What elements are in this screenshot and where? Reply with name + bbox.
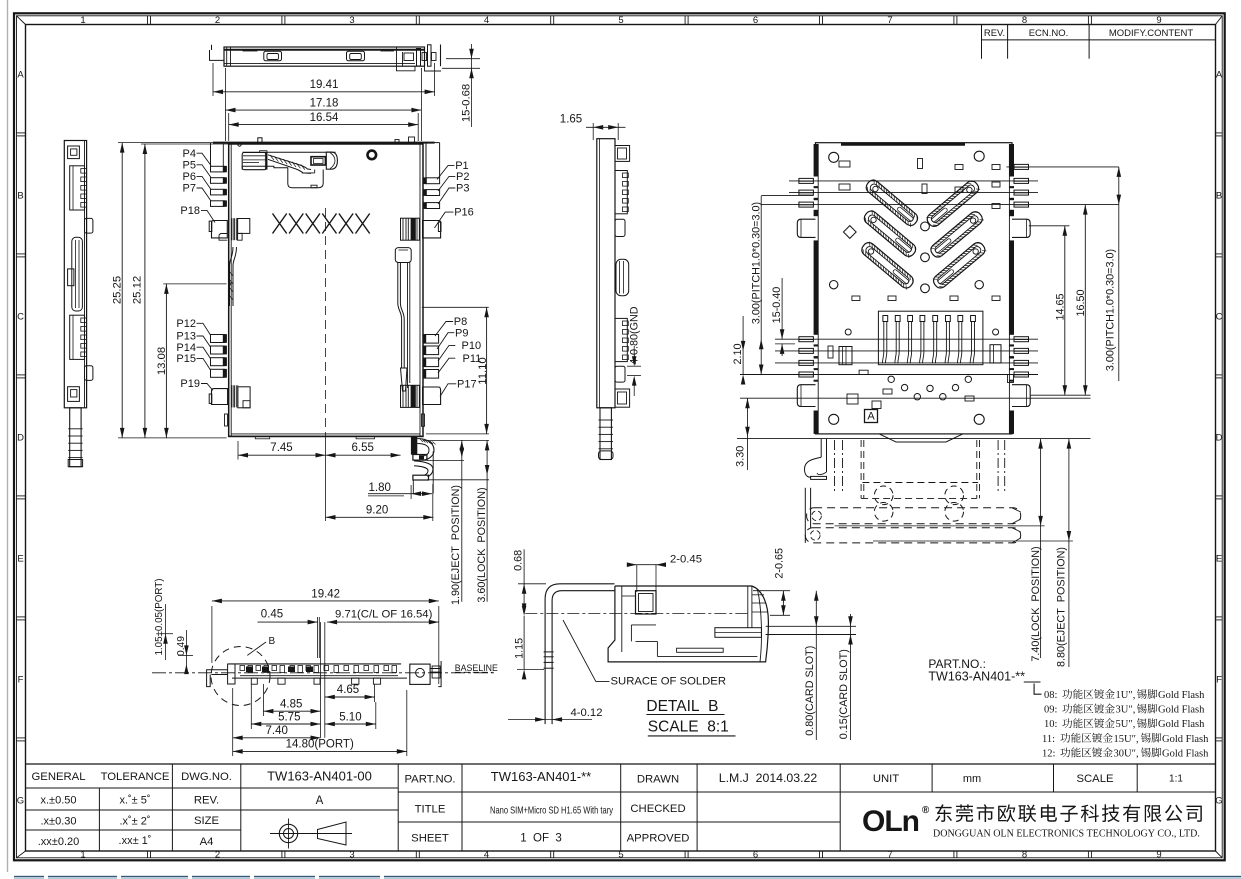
svg-text:G: G bbox=[1215, 795, 1222, 806]
svg-text:5.75: 5.75 bbox=[278, 711, 300, 723]
svg-text:14.65: 14.65 bbox=[1054, 293, 1066, 320]
svg-text:19.41: 19.41 bbox=[310, 79, 339, 91]
svg-text:C: C bbox=[1216, 311, 1223, 322]
svg-text:11.10: 11.10 bbox=[477, 357, 489, 384]
svg-text:SIZE: SIZE bbox=[194, 815, 220, 827]
svg-text:SCALE 8:1: SCALE 8:1 bbox=[648, 719, 729, 736]
svg-text:Gold Flash: Gold Flash bbox=[1158, 690, 1205, 701]
svg-text:Gold Flash: Gold Flash bbox=[1162, 748, 1209, 759]
svg-text:P19: P19 bbox=[180, 378, 200, 390]
svg-text:P16: P16 bbox=[454, 207, 474, 219]
svg-text:12:: 12: bbox=[1042, 748, 1056, 759]
svg-text:3.60(LOCK POSITION): 3.60(LOCK POSITION) bbox=[476, 487, 488, 602]
svg-text:DONGGUAN OLN ELECTRONICS TECHN: DONGGUAN OLN ELECTRONICS TECHNOLOGY CO.,… bbox=[933, 829, 1200, 840]
svg-text:2-0.65: 2-0.65 bbox=[774, 548, 786, 579]
svg-text:3.30: 3.30 bbox=[735, 446, 747, 467]
svg-text:P3: P3 bbox=[456, 183, 469, 195]
svg-text:1.15: 1.15 bbox=[513, 638, 525, 659]
svg-text:Gold Flash: Gold Flash bbox=[1158, 705, 1205, 716]
svg-text:9: 9 bbox=[1156, 15, 1161, 26]
svg-text:8: 8 bbox=[1022, 15, 1027, 26]
svg-text:P17: P17 bbox=[457, 378, 477, 390]
svg-text:16.50: 16.50 bbox=[1075, 289, 1087, 316]
svg-text:F: F bbox=[18, 674, 24, 685]
svg-text:A: A bbox=[17, 69, 24, 80]
svg-text:6.55: 6.55 bbox=[352, 442, 374, 454]
svg-text:REV.: REV. bbox=[984, 28, 1005, 39]
svg-text:E: E bbox=[17, 553, 23, 564]
svg-text:0.45: 0.45 bbox=[261, 609, 283, 621]
svg-text:17.18: 17.18 bbox=[310, 97, 339, 109]
svg-text:P13: P13 bbox=[176, 331, 196, 343]
svg-text:3U″,: 3U″, bbox=[1116, 705, 1136, 716]
svg-text:30U″,: 30U″, bbox=[1114, 748, 1139, 759]
svg-text:TW163-AN401-**: TW163-AN401-** bbox=[928, 670, 1025, 684]
svg-text:.xx± 1˚: .xx± 1˚ bbox=[119, 835, 152, 847]
svg-text:mm: mm bbox=[963, 773, 981, 785]
svg-text:1.80: 1.80 bbox=[369, 482, 391, 494]
svg-text:1: 1 bbox=[80, 849, 85, 860]
svg-text:P15: P15 bbox=[176, 353, 196, 365]
svg-text:P4: P4 bbox=[183, 148, 196, 160]
svg-text:P12: P12 bbox=[176, 318, 196, 330]
svg-text:15-0.40: 15-0.40 bbox=[771, 287, 783, 324]
svg-text:®: ® bbox=[922, 805, 930, 816]
svg-text:TW163-AN401-**: TW163-AN401-** bbox=[491, 769, 591, 784]
svg-text:OLn: OLn bbox=[862, 805, 919, 838]
svg-text:Gold Flash: Gold Flash bbox=[1158, 719, 1205, 730]
svg-text:4.85: 4.85 bbox=[280, 699, 302, 711]
svg-text:1:1: 1:1 bbox=[1169, 774, 1183, 785]
svg-text:3: 3 bbox=[349, 849, 354, 860]
svg-text:2-0.45: 2-0.45 bbox=[670, 554, 702, 566]
svg-text:3: 3 bbox=[349, 15, 354, 26]
svg-text:ECN.NO.: ECN.NO. bbox=[1029, 28, 1069, 39]
svg-text:REV.: REV. bbox=[194, 795, 219, 807]
svg-text:4-0.12: 4-0.12 bbox=[570, 707, 602, 719]
svg-text:09:: 09: bbox=[1044, 705, 1058, 716]
svg-text:7.45: 7.45 bbox=[270, 442, 292, 454]
svg-text:10:: 10: bbox=[1044, 719, 1058, 730]
svg-text:A: A bbox=[867, 411, 875, 423]
svg-text:13.08: 13.08 bbox=[156, 347, 168, 375]
svg-text:0.15(CARD SLOT): 0.15(CARD SLOT) bbox=[838, 649, 850, 739]
svg-text:TW163-AN401-00: TW163-AN401-00 bbox=[267, 769, 372, 784]
svg-text:E: E bbox=[1216, 553, 1222, 564]
svg-text:.xx±0.20: .xx±0.20 bbox=[38, 836, 80, 848]
svg-text:Gold Flash: Gold Flash bbox=[1162, 734, 1209, 745]
svg-text:25.25: 25.25 bbox=[111, 276, 123, 304]
svg-text:P8: P8 bbox=[454, 316, 467, 328]
svg-text:x.˚± 5˚: x.˚± 5˚ bbox=[119, 795, 150, 807]
svg-text:4: 4 bbox=[484, 15, 489, 26]
svg-text:1.05±0.05(PORT): 1.05±0.05(PORT) bbox=[154, 578, 165, 655]
svg-text:DETAIL B: DETAIL B bbox=[646, 698, 718, 715]
svg-text:9.20: 9.20 bbox=[366, 504, 388, 516]
svg-text:5: 5 bbox=[618, 15, 623, 26]
svg-text:3.00(PITCH1.0*0.30=3.0): 3.00(PITCH1.0*0.30=3.0) bbox=[1104, 249, 1116, 371]
svg-text:2: 2 bbox=[215, 849, 220, 860]
svg-text:6: 6 bbox=[753, 15, 758, 26]
svg-text:UNIT: UNIT bbox=[873, 773, 899, 785]
svg-text:5U″,: 5U″, bbox=[1116, 719, 1136, 730]
svg-text:B: B bbox=[17, 190, 23, 201]
svg-text:5.10: 5.10 bbox=[339, 711, 361, 723]
svg-text:L.M.J 2014.03.22: L.M.J 2014.03.22 bbox=[719, 771, 818, 785]
svg-text:8.80(EJECT POSITION): 8.80(EJECT POSITION) bbox=[1056, 547, 1068, 667]
svg-text:P2: P2 bbox=[456, 171, 469, 183]
svg-text:14.80(PORT): 14.80(PORT) bbox=[286, 739, 354, 751]
svg-text:08:: 08: bbox=[1044, 690, 1058, 701]
svg-text:TITLE: TITLE bbox=[415, 804, 446, 816]
svg-text:GENERAL: GENERAL bbox=[32, 771, 86, 783]
svg-text:P7: P7 bbox=[183, 183, 196, 195]
svg-text:.x˚± 2˚: .x˚± 2˚ bbox=[119, 816, 150, 828]
svg-text:2.10: 2.10 bbox=[732, 343, 744, 364]
svg-text:19.42: 19.42 bbox=[311, 588, 340, 600]
svg-text:CHECKED: CHECKED bbox=[630, 803, 685, 815]
svg-text:1U″,: 1U″, bbox=[1116, 690, 1136, 701]
svg-text:3.00(PITCH1.0*0.30=3.0): 3.00(PITCH1.0*0.30=3.0) bbox=[750, 202, 762, 324]
svg-text:APPROVED: APPROVED bbox=[627, 833, 690, 845]
svg-text:P6: P6 bbox=[183, 171, 196, 183]
svg-text:7.40(LOCK POSITION): 7.40(LOCK POSITION) bbox=[1030, 546, 1042, 661]
svg-text:A: A bbox=[316, 795, 324, 807]
svg-text:SHEET: SHEET bbox=[411, 833, 449, 845]
svg-text:SCALE: SCALE bbox=[1076, 773, 1114, 785]
svg-text:A4: A4 bbox=[200, 836, 214, 848]
svg-text:PART.NO.: PART.NO. bbox=[404, 774, 455, 786]
svg-text:9.71(C/L OF 16.54): 9.71(C/L OF 16.54) bbox=[335, 609, 433, 621]
svg-text:5: 5 bbox=[618, 849, 623, 860]
svg-text:7: 7 bbox=[887, 849, 892, 860]
svg-text:2: 2 bbox=[215, 15, 220, 26]
svg-text:BASELINE: BASELINE bbox=[455, 663, 498, 673]
svg-text:15-0.68: 15-0.68 bbox=[461, 84, 473, 122]
svg-text:C: C bbox=[17, 311, 24, 322]
svg-text:25.12: 25.12 bbox=[132, 276, 144, 304]
svg-text:1: 1 bbox=[80, 15, 85, 26]
svg-text:P14: P14 bbox=[176, 342, 196, 354]
svg-text:4.65: 4.65 bbox=[337, 684, 359, 696]
svg-text:6: 6 bbox=[753, 849, 758, 860]
svg-text:4: 4 bbox=[484, 849, 489, 860]
svg-text:P9: P9 bbox=[455, 327, 468, 339]
svg-text:B: B bbox=[1216, 190, 1222, 201]
svg-text:1.65: 1.65 bbox=[560, 114, 582, 126]
svg-text:TOLERANCE: TOLERANCE bbox=[101, 771, 170, 783]
svg-text:15U″,: 15U″, bbox=[1114, 734, 1139, 745]
svg-text:0.68: 0.68 bbox=[512, 550, 524, 571]
svg-text:1 OF 3: 1 OF 3 bbox=[520, 833, 562, 845]
svg-text:SURACE OF SOLDER: SURACE OF SOLDER bbox=[611, 675, 727, 687]
svg-text:P10: P10 bbox=[462, 340, 482, 352]
svg-text:B: B bbox=[269, 636, 276, 647]
svg-text:D: D bbox=[1216, 432, 1223, 443]
svg-text:Nano SIM+Micro SD H1.65 With t: Nano SIM+Micro SD H1.65 With tary bbox=[490, 806, 614, 817]
svg-text:A: A bbox=[1216, 69, 1223, 80]
svg-text:P18: P18 bbox=[180, 205, 200, 217]
svg-text:7: 7 bbox=[887, 15, 892, 26]
svg-text:16.54: 16.54 bbox=[310, 112, 339, 124]
svg-text:MODIFY.CONTENT: MODIFY.CONTENT bbox=[1109, 28, 1193, 39]
svg-text:11:: 11: bbox=[1042, 734, 1055, 745]
svg-text:DWG.NO.: DWG.NO. bbox=[181, 771, 232, 783]
svg-text:DRAWN: DRAWN bbox=[637, 774, 679, 786]
svg-text:F: F bbox=[1216, 674, 1222, 685]
svg-text:1.90(EJECT POSITION): 1.90(EJECT POSITION) bbox=[450, 485, 462, 605]
svg-text:.x±0.30: .x±0.30 bbox=[40, 816, 76, 828]
svg-text:0.80(CARD SLOT): 0.80(CARD SLOT) bbox=[804, 646, 816, 736]
svg-text:9: 9 bbox=[1156, 849, 1161, 860]
svg-text:D: D bbox=[17, 432, 24, 443]
svg-text:8: 8 bbox=[1022, 849, 1027, 860]
svg-text:x.±0.50: x.±0.50 bbox=[40, 795, 76, 807]
svg-text:7.40: 7.40 bbox=[266, 725, 288, 737]
svg-text:G: G bbox=[17, 795, 24, 806]
svg-text:P5: P5 bbox=[183, 159, 196, 171]
